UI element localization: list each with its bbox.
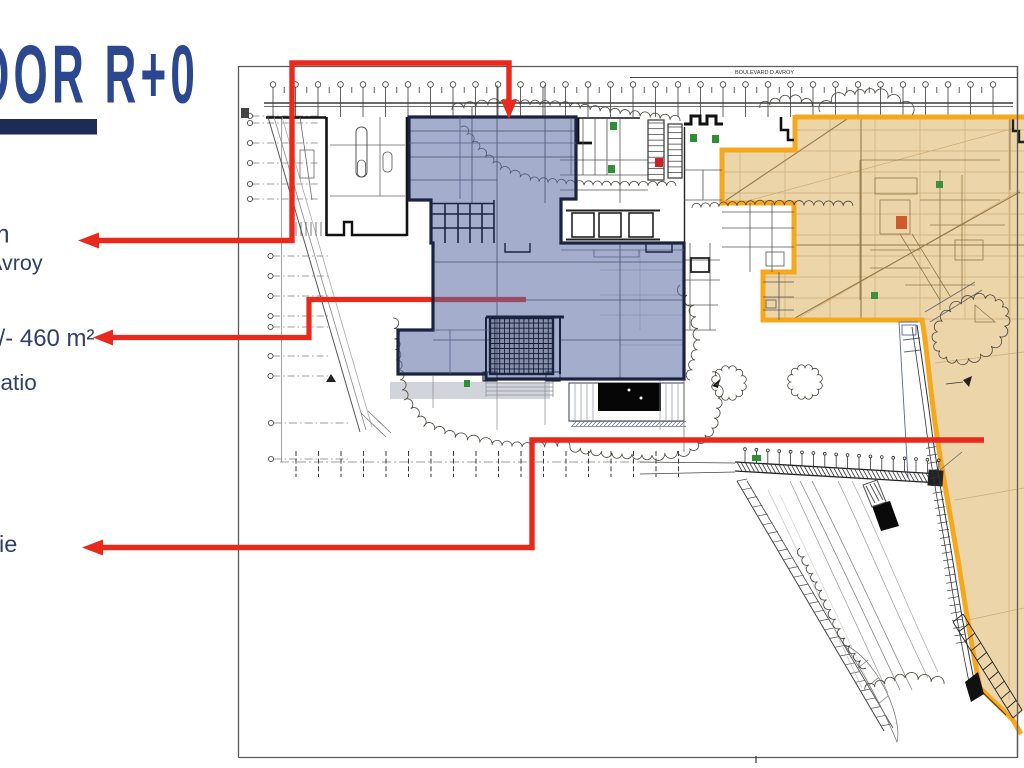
svg-text:m: m — [0, 219, 10, 249]
svg-text:ie: ie — [0, 531, 17, 557]
svg-text:OOR R+0: OOR R+0 — [0, 29, 199, 121]
svg-text:+/- 460 m²: +/- 460 m² — [0, 325, 95, 352]
svg-text:Avroy: Avroy — [0, 251, 43, 275]
svg-text:BOULEVARD D AVROY: BOULEVARD D AVROY — [735, 70, 794, 76]
svg-text:patio: patio — [0, 370, 37, 395]
